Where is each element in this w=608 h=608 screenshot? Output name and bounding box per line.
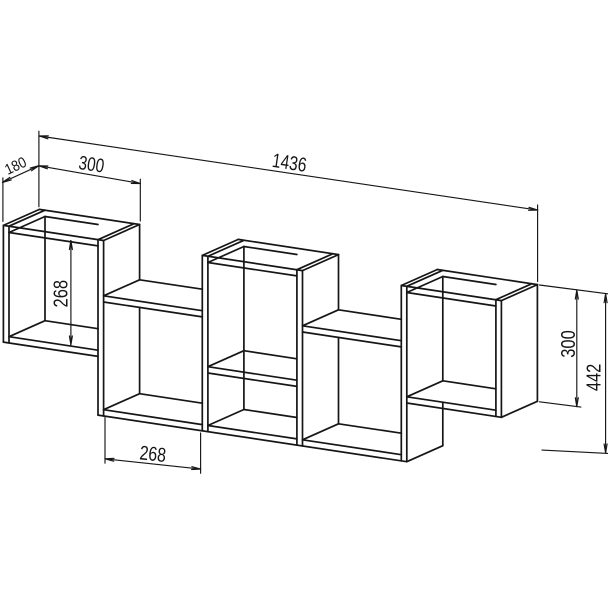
svg-text:268: 268 xyxy=(50,280,72,308)
svg-text:300: 300 xyxy=(558,330,580,358)
svg-text:442: 442 xyxy=(584,364,606,392)
svg-text:268: 268 xyxy=(138,442,167,467)
svg-text:300: 300 xyxy=(77,152,106,178)
